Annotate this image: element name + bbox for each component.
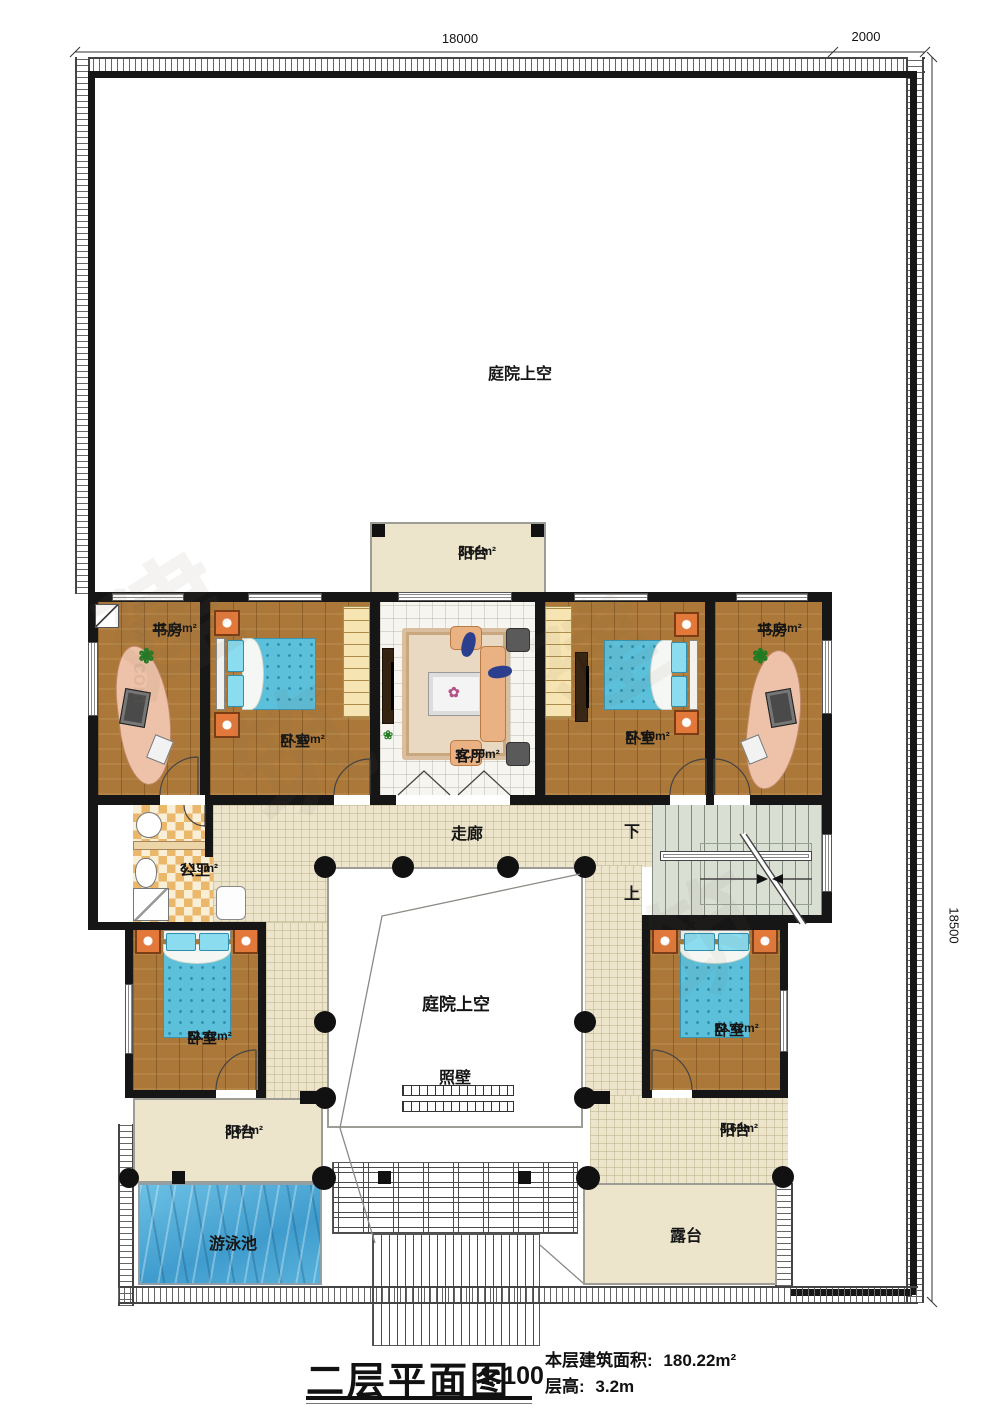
partition: [705, 602, 715, 798]
title-underline-thin: [306, 1403, 532, 1404]
column: [314, 1087, 336, 1109]
floor-plan: 18000 2000 18500 庭院上空 阳台 2.56m² ❃: [0, 0, 1000, 1414]
vanity-counter: [133, 841, 211, 850]
pillow: [684, 933, 715, 951]
partition: [200, 602, 210, 798]
courtyard-top-label: 庭院上空: [488, 360, 552, 384]
pillow: [227, 675, 244, 707]
washing-machine: [216, 886, 246, 920]
plot-wall-left-line: [88, 71, 95, 594]
door-opening: [396, 795, 510, 805]
column: [172, 1171, 185, 1184]
balcony-right-floor: [590, 1095, 788, 1183]
plant-icon: ❃: [752, 644, 769, 669]
pillow: [199, 933, 229, 951]
column: [119, 1168, 139, 1188]
door-opening: [216, 1090, 256, 1098]
wall: [642, 922, 650, 1098]
wardrobe: [545, 606, 572, 718]
corner-box: [95, 604, 119, 628]
corridor-label: 走廊: [451, 820, 483, 844]
screen-wall: [402, 1101, 514, 1112]
corridor-floor: [266, 922, 327, 1098]
bed-headboard: [689, 640, 698, 710]
column: [378, 1171, 391, 1184]
pillow: [671, 642, 687, 673]
column: [314, 1011, 336, 1033]
plant-icon: ❀: [383, 728, 393, 742]
wall: [642, 922, 788, 930]
column: [574, 856, 596, 878]
column: [392, 856, 414, 878]
partition: [535, 602, 545, 798]
window: [736, 593, 808, 601]
door-opening: [334, 795, 370, 805]
plant-icon: ❃: [138, 644, 155, 669]
courtyard-inner-label: 庭院上空: [422, 990, 490, 1015]
wall: [125, 922, 266, 930]
nightstand: [214, 610, 240, 636]
nightstand: [233, 928, 259, 954]
plot-wall-top-line: [88, 71, 912, 78]
floor-area-text: 本层建筑面积: 180.22m²: [545, 1346, 736, 1371]
column: [314, 856, 336, 878]
bathroom-wall-right: [205, 805, 213, 857]
column: [576, 1166, 600, 1190]
column: [312, 1166, 336, 1190]
nightstand: [674, 612, 699, 637]
door-opening: [184, 795, 205, 805]
balcony-door: [398, 592, 512, 601]
sink: [136, 812, 162, 838]
wall: [258, 922, 266, 1098]
window: [822, 834, 832, 892]
nightstand: [135, 928, 161, 954]
dimension-top-right: 2000: [852, 29, 881, 44]
column-stub: [593, 1091, 610, 1104]
window: [88, 642, 98, 716]
terrace-wall-right: [775, 1183, 793, 1286]
column: [497, 856, 519, 878]
floor-height-text: 层高: 3.2m: [545, 1372, 634, 1397]
stairs-up-label: 上: [624, 880, 640, 904]
window: [248, 593, 322, 601]
stairs-handrail: [660, 851, 812, 861]
column: [518, 1171, 531, 1184]
sofa: [480, 646, 506, 742]
pillow: [227, 640, 244, 672]
window: [112, 593, 184, 601]
flower-icon: ✿: [448, 684, 460, 701]
pool-wall-left: [118, 1124, 134, 1306]
terrace-label: 露台: [670, 1222, 702, 1246]
window: [822, 640, 832, 714]
nightstand: [214, 712, 240, 738]
window: [780, 990, 788, 1052]
nightstand: [674, 710, 699, 735]
shower: [133, 888, 169, 921]
door-opening: [652, 1090, 692, 1098]
door-opening: [714, 795, 750, 805]
drawing-scale: 1:100: [480, 1362, 544, 1391]
pillow: [718, 933, 749, 951]
plot-wall-bottom: [118, 1286, 918, 1304]
dimension-right: 18500: [947, 907, 962, 943]
stairs-down-label: 下: [624, 818, 640, 842]
bed-headboard: [216, 638, 225, 710]
partition: [370, 602, 380, 798]
plot-wall-right-line: [910, 71, 917, 1295]
wardrobe: [343, 606, 370, 718]
nightstand: [652, 928, 678, 954]
screen-wall-label: 照壁: [439, 1064, 471, 1088]
toilet: [135, 858, 157, 888]
tv-icon: [391, 662, 394, 710]
pergola-lattice: [332, 1162, 578, 1234]
title-underline: [306, 1396, 532, 1400]
side-table: [506, 742, 530, 766]
pillow: [166, 933, 196, 951]
pool-label: 游泳池: [209, 1230, 257, 1254]
door-opening: [670, 795, 706, 805]
nightstand: [752, 928, 778, 954]
column-stub: [300, 1091, 317, 1104]
bed-sheet: [650, 640, 672, 710]
balcony-column: [372, 524, 385, 537]
column: [574, 1011, 596, 1033]
balcony-column: [531, 524, 544, 537]
dimension-top: 18000: [442, 31, 478, 46]
window: [574, 593, 648, 601]
tv-icon: [586, 666, 589, 708]
column: [772, 1166, 794, 1188]
side-table: [506, 628, 530, 652]
window: [125, 984, 133, 1054]
pillow: [671, 676, 687, 707]
